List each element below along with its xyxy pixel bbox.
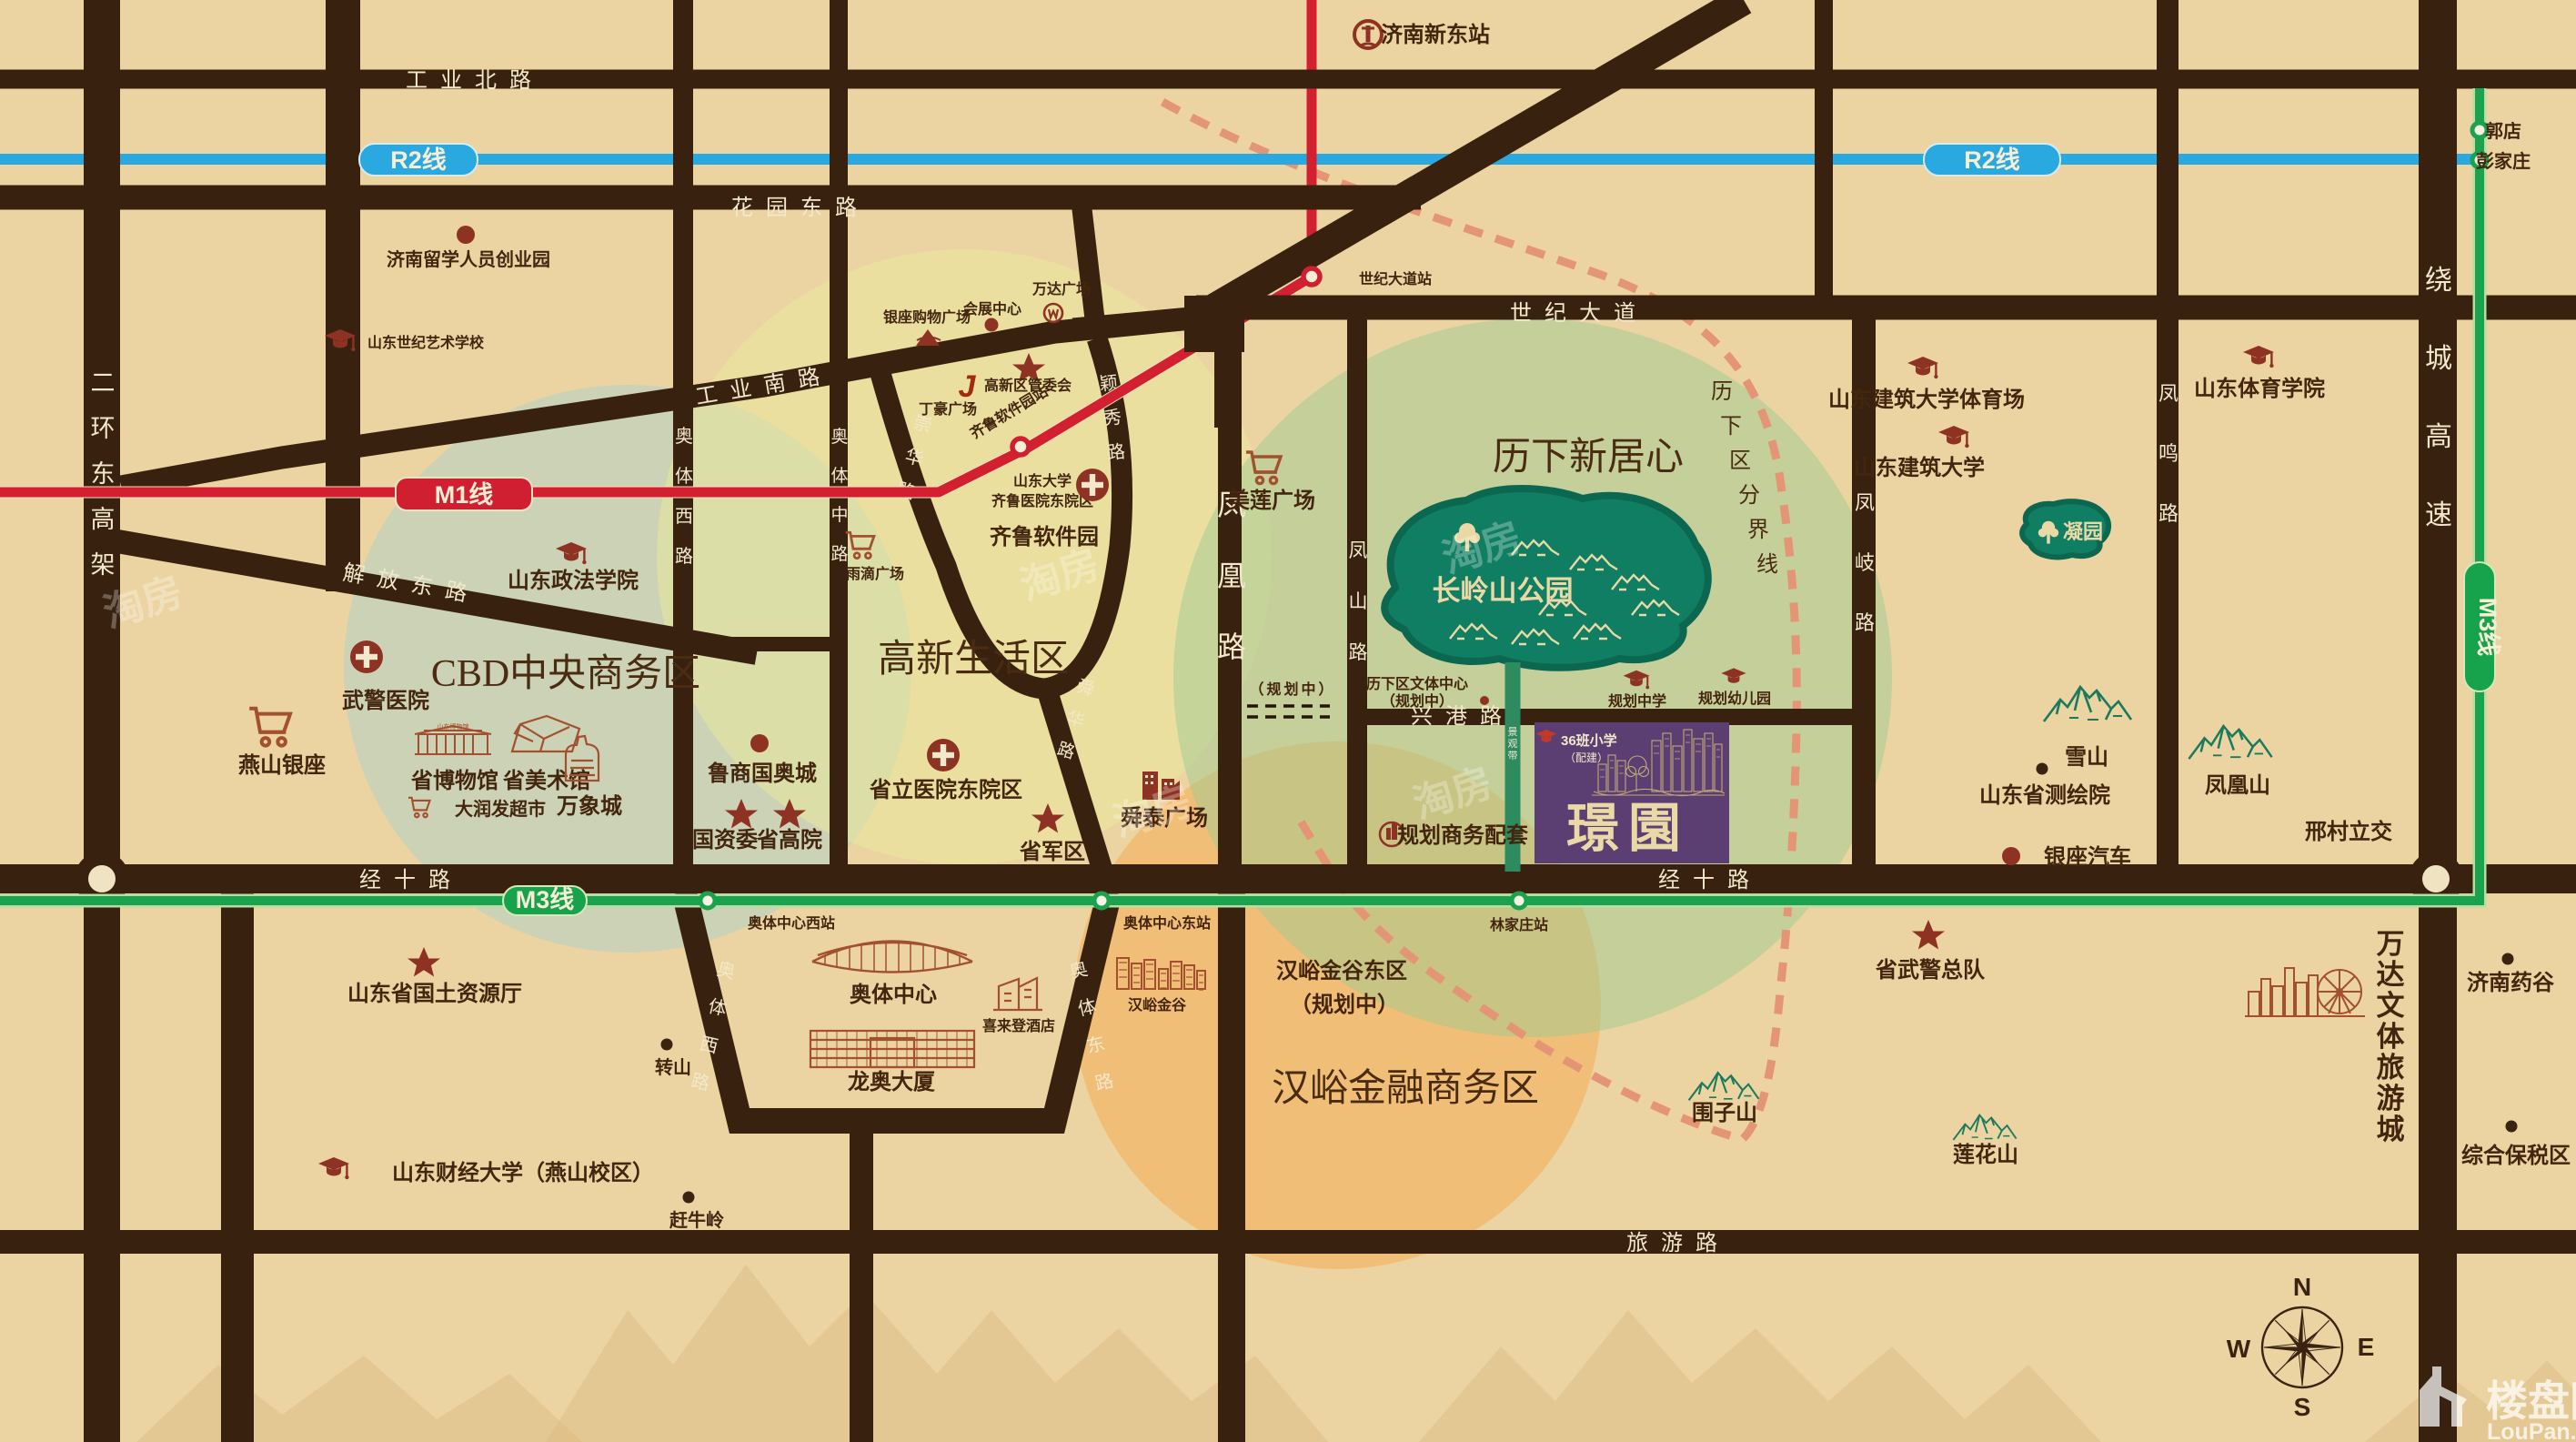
svg-text:奥体中心东站: 奥体中心东站 (1123, 914, 1211, 932)
svg-text:路: 路 (830, 544, 848, 564)
svg-text:历: 历 (1711, 379, 1733, 404)
svg-text:路: 路 (2158, 502, 2179, 525)
svg-text:省军区: 省军区 (1019, 840, 1085, 864)
svg-text:山东政法学院: 山东政法学院 (508, 568, 639, 593)
svg-text:旅游路: 旅游路 (1626, 1231, 1730, 1255)
svg-text:凤: 凤 (2158, 382, 2179, 405)
svg-text:线: 线 (1756, 552, 1778, 577)
svg-text:省立医院东院区: 省立医院东院区 (869, 777, 1022, 802)
svg-text:银座汽车: 银座汽车 (2044, 844, 2131, 870)
svg-text:山东世纪艺术学校: 山东世纪艺术学校 (367, 334, 485, 351)
svg-text:历下新居心: 历下新居心 (1493, 437, 1684, 479)
svg-text:环: 环 (91, 415, 116, 442)
svg-text:赶牛岭: 赶牛岭 (669, 1209, 724, 1231)
svg-text:下: 下 (1720, 414, 1742, 439)
svg-text:M3线: M3线 (2474, 598, 2501, 657)
svg-text:山: 山 (1349, 591, 1368, 612)
svg-text:奥: 奥 (675, 426, 693, 447)
svg-text:文: 文 (2377, 990, 2405, 1022)
svg-text:R2线: R2线 (1964, 146, 2020, 174)
svg-text:界: 界 (1747, 518, 1769, 542)
svg-text:体: 体 (2377, 1021, 2405, 1053)
svg-text:凤: 凤 (1855, 491, 1875, 514)
svg-text:M3线: M3线 (516, 886, 575, 913)
svg-text:会展中心: 会展中心 (963, 300, 1021, 318)
svg-text:围子山: 围子山 (1692, 1101, 1757, 1125)
svg-text:高新生活区: 高新生活区 (878, 639, 1069, 681)
svg-text:路: 路 (1349, 642, 1368, 663)
svg-text:J: J (959, 369, 977, 404)
svg-text:综合保税区: 综合保税区 (2461, 1143, 2571, 1168)
svg-text:万达广场: 万达广场 (1031, 280, 1091, 297)
svg-text:山东省测绘院: 山东省测绘院 (1979, 782, 2110, 808)
svg-text:中: 中 (830, 505, 848, 525)
svg-text:莲花山: 莲花山 (1953, 1143, 2018, 1167)
svg-text:郭店: 郭店 (2485, 120, 2521, 142)
svg-text:历下区文体中心: 历下区文体中心 (1366, 675, 1468, 692)
svg-text:省高院: 省高院 (756, 827, 822, 852)
svg-text:凤凰山: 凤凰山 (2205, 773, 2270, 798)
svg-text:游: 游 (2377, 1083, 2405, 1114)
svg-text:鲁商国奥城: 鲁商国奥城 (708, 761, 817, 786)
svg-text:带: 带 (1508, 750, 1518, 761)
svg-text:W: W (2227, 1335, 2251, 1363)
svg-text:岐: 岐 (1855, 551, 1875, 574)
svg-text:体: 体 (675, 466, 693, 487)
svg-text:规划幼儿园: 规划幼儿园 (1698, 690, 1771, 707)
svg-text:东: 东 (91, 460, 116, 488)
svg-text:龙奥大厦: 龙奥大厦 (848, 1069, 935, 1094)
svg-text:彭家庄: 彭家庄 (2476, 150, 2531, 172)
svg-text:分: 分 (1738, 483, 1760, 508)
svg-text:转山: 转山 (655, 1056, 691, 1078)
svg-text:E: E (2358, 1333, 2375, 1361)
svg-text:N: N (2293, 1273, 2311, 1301)
svg-text:速: 速 (2425, 500, 2452, 530)
svg-text:R2线: R2线 (390, 146, 447, 174)
svg-text:国资委: 国资委 (692, 828, 758, 852)
svg-text:凤: 凤 (1349, 540, 1368, 561)
svg-text:（规划中）: （规划中） (1381, 692, 1454, 710)
svg-text:规划商务配套: 规划商务配套 (1397, 822, 1529, 848)
svg-text:万象城: 万象城 (557, 793, 622, 819)
svg-text:景: 景 (1508, 726, 1518, 738)
svg-text:山东大学: 山东大学 (1013, 472, 1072, 489)
svg-text:璟園: 璟園 (1566, 799, 1690, 858)
svg-text:花园东路: 花园东路 (731, 196, 870, 220)
svg-text:S: S (2294, 1393, 2311, 1421)
svg-text:汉峪金融商务区: 汉峪金融商务区 (1272, 1067, 1539, 1110)
svg-text:雪山: 雪山 (2065, 745, 2108, 770)
svg-text:36班小学: 36班小学 (1561, 732, 1617, 749)
svg-text:山东财经大学（燕山校区）: 山东财经大学（燕山校区） (392, 1160, 654, 1185)
svg-text:山东省国土资源厅: 山东省国土资源厅 (347, 981, 522, 1006)
svg-text:世纪大道: 世纪大道 (1510, 301, 1648, 326)
svg-text:（配建）: （配建） (1565, 751, 1608, 764)
svg-text:路: 路 (1855, 611, 1875, 634)
svg-text:世纪大道站: 世纪大道站 (1359, 270, 1432, 287)
svg-text:雨滴广场: 雨滴广场 (846, 565, 904, 582)
svg-text:奥: 奥 (830, 427, 848, 447)
svg-text:楼盘网: 楼盘网 (2486, 1377, 2576, 1425)
svg-text:体: 体 (830, 466, 848, 486)
svg-text:LouPan.com: LouPan.com (2487, 1419, 2576, 1442)
svg-text:美莲广场: 美莲广场 (1228, 488, 1315, 513)
svg-text:城: 城 (2425, 344, 2452, 374)
svg-text:秀: 秀 (1102, 407, 1122, 429)
svg-text:凰: 凰 (1217, 560, 1246, 592)
svg-text:路: 路 (1217, 630, 1246, 663)
svg-text:山东建筑大学: 山东建筑大学 (1854, 455, 1985, 480)
svg-text:二: 二 (91, 369, 116, 397)
svg-text:高: 高 (2425, 422, 2452, 452)
svg-text:邢村立交: 邢村立交 (2305, 819, 2392, 844)
svg-text:林家庄站: 林家庄站 (1490, 916, 1548, 933)
svg-text:凝园: 凝园 (2063, 520, 2103, 543)
svg-text:规划中学: 规划中学 (1608, 692, 1666, 710)
svg-text:高: 高 (91, 506, 116, 533)
svg-text:高新区管委会: 高新区管委会 (984, 377, 1072, 394)
svg-text:省武警总队: 省武警总队 (1875, 957, 1986, 983)
svg-text:观: 观 (1508, 738, 1518, 750)
svg-text:绕: 绕 (2425, 266, 2452, 296)
svg-text:齐鲁医院东院区: 齐鲁医院东院区 (991, 492, 1093, 509)
svg-text:济南留学人员创业园: 济南留学人员创业园 (387, 248, 550, 270)
svg-text:汉峪金谷东区: 汉峪金谷东区 (1276, 958, 1407, 983)
svg-text:城: 城 (2377, 1114, 2405, 1145)
svg-text:汉峪金谷: 汉峪金谷 (1128, 996, 1187, 1013)
svg-text:区: 区 (1729, 449, 1751, 473)
svg-text:银座购物广场: 银座购物广场 (883, 308, 971, 326)
svg-text:达: 达 (2377, 959, 2405, 991)
svg-text:路: 路 (675, 546, 693, 567)
svg-text:山东建筑大学体育场: 山东建筑大学体育场 (1828, 387, 2025, 412)
svg-text:架: 架 (91, 551, 116, 579)
svg-text:燕山银座: 燕山银座 (238, 752, 326, 778)
svg-text:山东博物馆: 山东博物馆 (438, 722, 469, 731)
svg-text:奥体中心: 奥体中心 (850, 982, 937, 1007)
svg-text:山东体育学院: 山东体育学院 (2194, 376, 2325, 401)
svg-text:工业北路: 工业北路 (406, 68, 544, 93)
svg-text:旅: 旅 (2377, 1052, 2405, 1084)
svg-text:M1线: M1线 (435, 481, 494, 509)
svg-text:省博物馆: 省博物馆 (410, 768, 498, 793)
svg-text:路: 路 (1106, 441, 1126, 464)
svg-text:武警医院: 武警医院 (342, 688, 429, 713)
svg-text:喜来登酒店: 喜来登酒店 (982, 1017, 1055, 1034)
svg-text:经十路: 经十路 (359, 868, 463, 892)
svg-text:奥体中心西站: 奥体中心西站 (748, 914, 835, 932)
svg-text:（规划中）: （规划中） (1290, 993, 1399, 1017)
svg-text:丁豪广场: 丁豪广场 (919, 400, 977, 418)
svg-text:鸣: 鸣 (2158, 442, 2179, 465)
svg-text:济南药谷: 济南药谷 (2467, 970, 2555, 995)
svg-text:大润发超市: 大润发超市 (455, 798, 546, 820)
svg-text:（规划中）: （规划中） (1249, 681, 1335, 698)
svg-text:经十路: 经十路 (1658, 868, 1762, 892)
svg-text:济南新东站: 济南新东站 (1381, 22, 1490, 47)
svg-text:CBD中央商务区: CBD中央商务区 (431, 653, 700, 695)
svg-text:万: 万 (2377, 928, 2405, 960)
svg-text:西: 西 (675, 507, 693, 527)
